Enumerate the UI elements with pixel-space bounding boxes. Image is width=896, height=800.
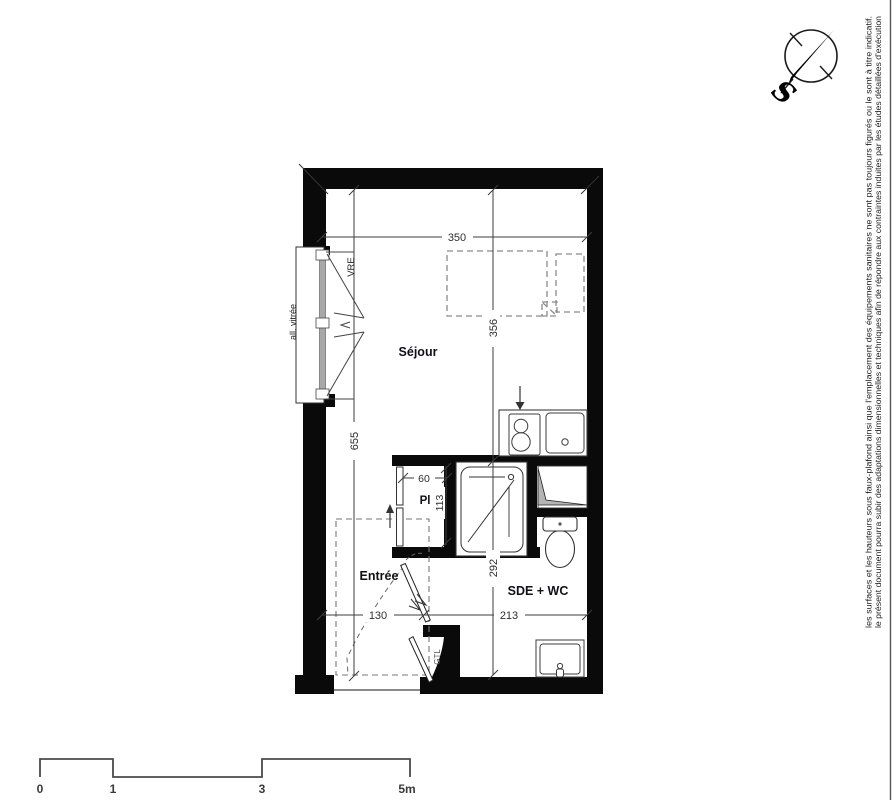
scale-bar-line [40,759,410,777]
side-disclaimer: le présent document pourra subir des ada… [865,16,884,628]
wall-bottom [420,677,590,694]
sink-icon [546,413,584,453]
scale-label-0: 0 [37,782,44,796]
dim-label-130: 130 [369,610,387,622]
label-roller-shutter: VRE [346,257,357,277]
disclaimer-line-2: les surfaces et les hauteurs sous faux-p… [865,16,874,628]
duct-niche [538,466,587,508]
kitchenette [499,386,587,456]
dim-label-60: 60 [418,473,430,485]
wall-right [587,189,603,694]
floor-plan-page: le présent document pourra subir des ada… [0,0,896,800]
bed-outline [447,251,547,316]
closet-door-panel-1 [397,467,404,505]
label-glazed-sill: all. vitrée [288,304,298,340]
wall-left-upper [303,189,326,250]
wall-shower-right [527,466,537,558]
bed-corner-diagonal [543,303,556,315]
dim-label-655: 655 [349,432,361,450]
room-label-sde-wc: SDE + WC [508,584,569,598]
bed-dashed [447,251,584,316]
compass-south-label: S [765,73,802,111]
bedside-outline [556,254,584,312]
dim-label-213: 213 [500,610,518,622]
wall-left-lower [303,397,326,677]
scale-label-1: 1 [110,782,117,796]
scale-label-5m: 5m [398,782,415,796]
shower-head-icon [508,474,513,479]
closet-door-panel-2 [397,508,404,546]
toilet-button [558,522,561,525]
dim-label-292: 292 [488,559,500,577]
dimension-labels: 350 655 356 292 60 113 130 213 [347,230,525,622]
room-label-entree: Entrée [360,569,399,583]
entry-arrow-head [386,504,394,513]
window-handle-bottom [316,389,329,399]
wall-top [303,168,603,189]
dim-label-113: 113 [434,494,446,511]
scale-label-3: 3 [259,782,266,796]
washbasin [536,640,584,677]
compass-rose: S [765,30,837,112]
wall-bottom-left-block [295,675,334,694]
floor-plan-drawing: le présent document pourra subir des ada… [0,0,896,800]
label-gtl-duct: GTL [433,649,442,665]
toilet [543,517,577,568]
window-handle-mid [316,318,329,328]
scale-bar: 0 1 3 5m [37,759,416,796]
dim-label-350: 350 [448,232,466,244]
dim-label-356: 356 [488,319,500,337]
basin-faucet [557,669,564,677]
toilet-bowl [546,531,575,568]
wall-niche-bottom [537,508,588,517]
room-label-placard: Pl [420,495,431,507]
shower [456,462,527,556]
disclaimer-line-1: le présent document pourra subir des ada… [874,16,883,628]
room-label-sejour: Séjour [399,345,438,359]
kitchen-arrow-head [516,402,525,410]
